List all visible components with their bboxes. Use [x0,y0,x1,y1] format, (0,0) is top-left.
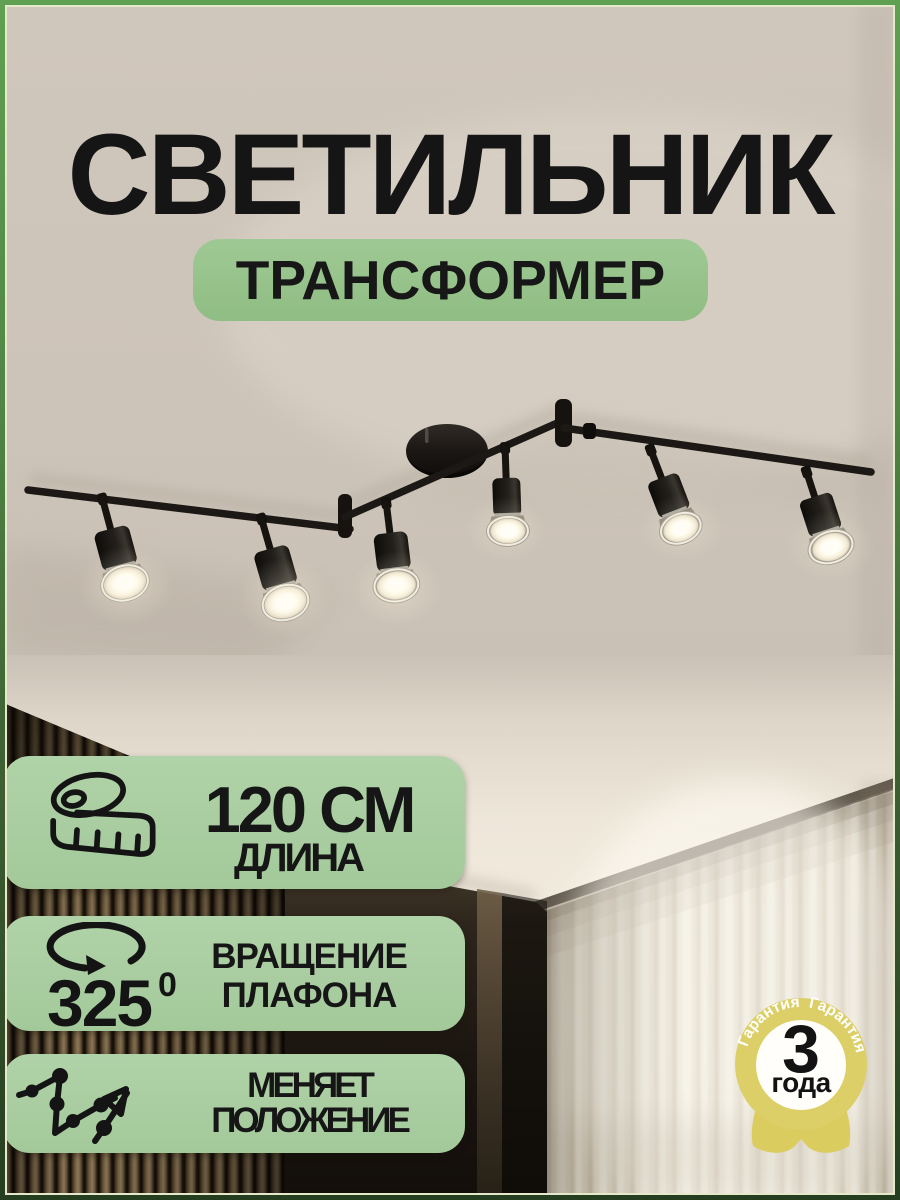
svg-text:325: 325 [47,966,151,1034]
svg-text:года: года [771,1067,831,1098]
